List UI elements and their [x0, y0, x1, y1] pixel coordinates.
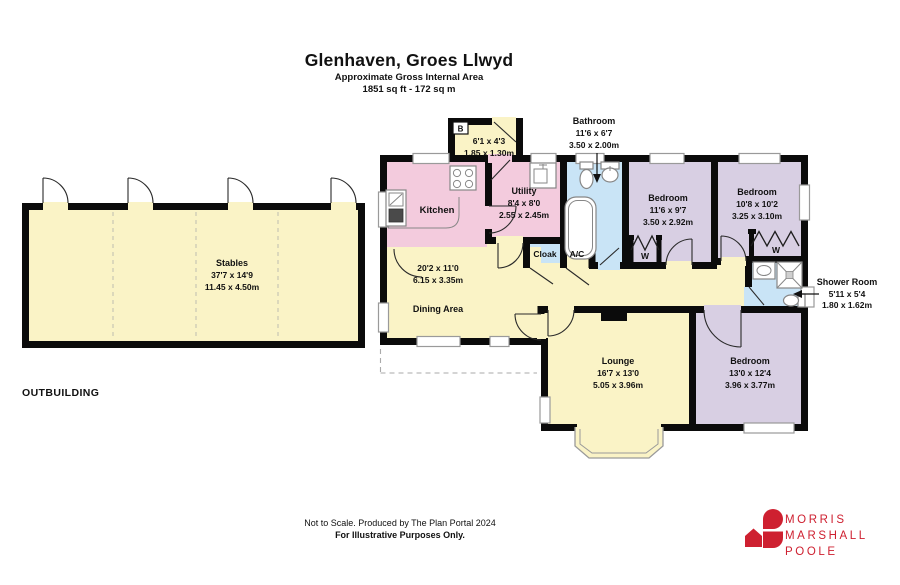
svg-text:16'7 x 13'0: 16'7 x 13'0	[597, 368, 639, 378]
svg-text:1.85 x 1.30m: 1.85 x 1.30m	[464, 148, 515, 158]
utility-sink-icon	[530, 163, 556, 188]
bedroom3-bottom-window	[744, 423, 794, 433]
svg-text:6.15 x 3.35m: 6.15 x 3.35m	[413, 275, 464, 285]
lounge-door-gap	[548, 305, 574, 314]
corridor-bottom-window	[490, 337, 509, 347]
shower-tray-icon	[777, 262, 802, 288]
kitchen-utility-door-gap	[484, 206, 493, 229]
logo-bottom-blob	[763, 532, 783, 549]
kitchen-sink-icon	[386, 190, 406, 226]
svg-text:Bedroom: Bedroom	[648, 193, 688, 203]
bedroom3-door-gap	[704, 305, 741, 314]
bedroom2-door-gap	[721, 257, 746, 266]
svg-text:8'4 x 8'0: 8'4 x 8'0	[508, 198, 541, 208]
svg-text:B: B	[458, 125, 464, 134]
svg-text:11'6 x 9'7: 11'6 x 9'7	[650, 205, 687, 215]
morris-marshall-poole-logo-icon	[745, 509, 783, 548]
svg-text:Stables: Stables	[216, 258, 248, 268]
ac-label: A/C	[570, 249, 585, 259]
bedroom1-wardrobe-label: W	[641, 251, 650, 261]
footer-illustrative: For Illustrative Purposes Only.	[335, 530, 465, 540]
bathroom-label: Bathroom 11'6 x 6'7 3.50 x 2.00m	[569, 116, 620, 150]
chimney-breast	[601, 306, 627, 321]
agent-logo: MORRIS MARSHALL POOLE	[745, 509, 868, 558]
bedroom1-door-gap	[666, 261, 692, 270]
floorplan-canvas: Glenhaven, Groes Llwyd Approximate Gross…	[0, 0, 900, 585]
bedroom2-wardrobe-label: W	[772, 245, 781, 255]
svg-text:13'0 x 12'4: 13'0 x 12'4	[729, 368, 771, 378]
stables-floor	[25, 207, 362, 345]
logo-line2: MARSHALL	[785, 530, 868, 542]
logo-house-shape	[745, 529, 762, 548]
stove-icon	[450, 166, 476, 190]
footer: Not to Scale. Produced by The Plan Porta…	[304, 518, 495, 540]
logo-line1: MORRIS	[785, 514, 847, 526]
utility-top-window	[531, 154, 556, 164]
svg-text:6'1 x 4'3: 6'1 x 4'3	[473, 136, 506, 146]
svg-text:3.50 x 2.92m: 3.50 x 2.92m	[643, 217, 694, 227]
kitchen-top-window	[413, 154, 449, 164]
stables-door-gap-4	[331, 202, 356, 211]
svg-text:Shower Room: Shower Room	[817, 277, 878, 287]
logo-top-blob	[763, 509, 783, 529]
svg-text:3.50 x 2.00m: 3.50 x 2.00m	[569, 140, 620, 150]
svg-text:1.80 x 1.62m: 1.80 x 1.62m	[822, 300, 873, 310]
stables-door-gap-3	[228, 202, 253, 211]
svg-text:Lounge: Lounge	[602, 356, 635, 366]
svg-text:10'8 x 10'2: 10'8 x 10'2	[736, 199, 778, 209]
gross-internal-area: 1851 sq ft - 172 sq m	[363, 84, 456, 95]
shower-basin-icon	[753, 262, 775, 279]
bedroom2-right-window	[800, 185, 810, 220]
svg-text:Bathroom: Bathroom	[573, 116, 616, 126]
hallway-floor	[415, 263, 752, 309]
svg-text:11'6 x 6'7: 11'6 x 6'7	[576, 128, 613, 138]
floorplan-page: Glenhaven, Groes Llwyd Approximate Gross…	[0, 0, 900, 585]
outbuilding-label: OUTBUILDING	[22, 387, 99, 399]
porch-outline	[381, 349, 538, 373]
svg-text:2.55 x 2.45m: 2.55 x 2.45m	[499, 210, 550, 220]
page-subtitle: Approximate Gross Internal Area	[335, 72, 484, 83]
svg-text:Bedroom: Bedroom	[737, 187, 777, 197]
svg-text:5.05 x 3.96m: 5.05 x 3.96m	[593, 380, 644, 390]
lounge-left-window	[540, 397, 550, 423]
lounge-bay-window	[575, 424, 663, 458]
basin-icon	[601, 162, 619, 182]
dining-lounge-door-gap	[537, 314, 546, 339]
stables-door-2	[128, 178, 153, 203]
boiler-door-gap	[492, 117, 516, 126]
bedroom3-label: Bedroom 13'0 x 12'4 3.96 x 3.77m	[725, 356, 776, 390]
bedroom1-label: Bedroom 11'6 x 9'7 3.50 x 2.92m	[643, 193, 694, 227]
svg-text:Bedroom: Bedroom	[730, 356, 770, 366]
bedroom2-label: Bedroom 10'8 x 10'2 3.25 x 3.10m	[732, 187, 783, 221]
svg-text:3.25 x 3.10m: 3.25 x 3.10m	[732, 211, 783, 221]
svg-text:3.96 x 3.77m: 3.96 x 3.77m	[725, 380, 776, 390]
bedroom2-floor	[713, 155, 808, 265]
bathroom-door-gap	[598, 261, 620, 270]
svg-text:20'2 x 11'0: 20'2 x 11'0	[417, 263, 459, 273]
kitchen-label: Kitchen	[420, 205, 455, 216]
title-block: Glenhaven, Groes Llwyd Approximate Gross…	[305, 50, 514, 95]
dining-bottom-window	[417, 337, 460, 347]
stables-door-3	[228, 178, 253, 203]
page-title: Glenhaven, Groes Llwyd	[305, 50, 514, 70]
bedroom1-top-window	[650, 154, 684, 164]
svg-text:37'7 x 14'9: 37'7 x 14'9	[211, 270, 253, 280]
bedroom2-top-window	[739, 154, 780, 164]
stables-door-1	[43, 178, 68, 203]
cloak-label: Cloak	[533, 249, 556, 259]
footer-disclaimer: Not to Scale. Produced by The Plan Porta…	[304, 518, 495, 528]
shower-label: Shower Room 5'11 x 5'4 1.80 x 1.62m	[817, 277, 878, 310]
svg-text:11.45 x 4.50m: 11.45 x 4.50m	[205, 282, 260, 292]
dining-left-window	[379, 303, 389, 332]
utility-hall-door-gap	[496, 236, 523, 245]
svg-text:Dining Area: Dining Area	[413, 304, 464, 314]
stables-door-gap-1	[43, 202, 68, 211]
stables-door-4	[331, 178, 356, 203]
toilet-icon	[580, 162, 593, 189]
svg-text:Utility: Utility	[511, 186, 536, 196]
stables-door-gap-2	[128, 202, 153, 211]
svg-text:5'11 x 5'4: 5'11 x 5'4	[829, 289, 866, 299]
logo-line3: POOLE	[785, 546, 838, 558]
